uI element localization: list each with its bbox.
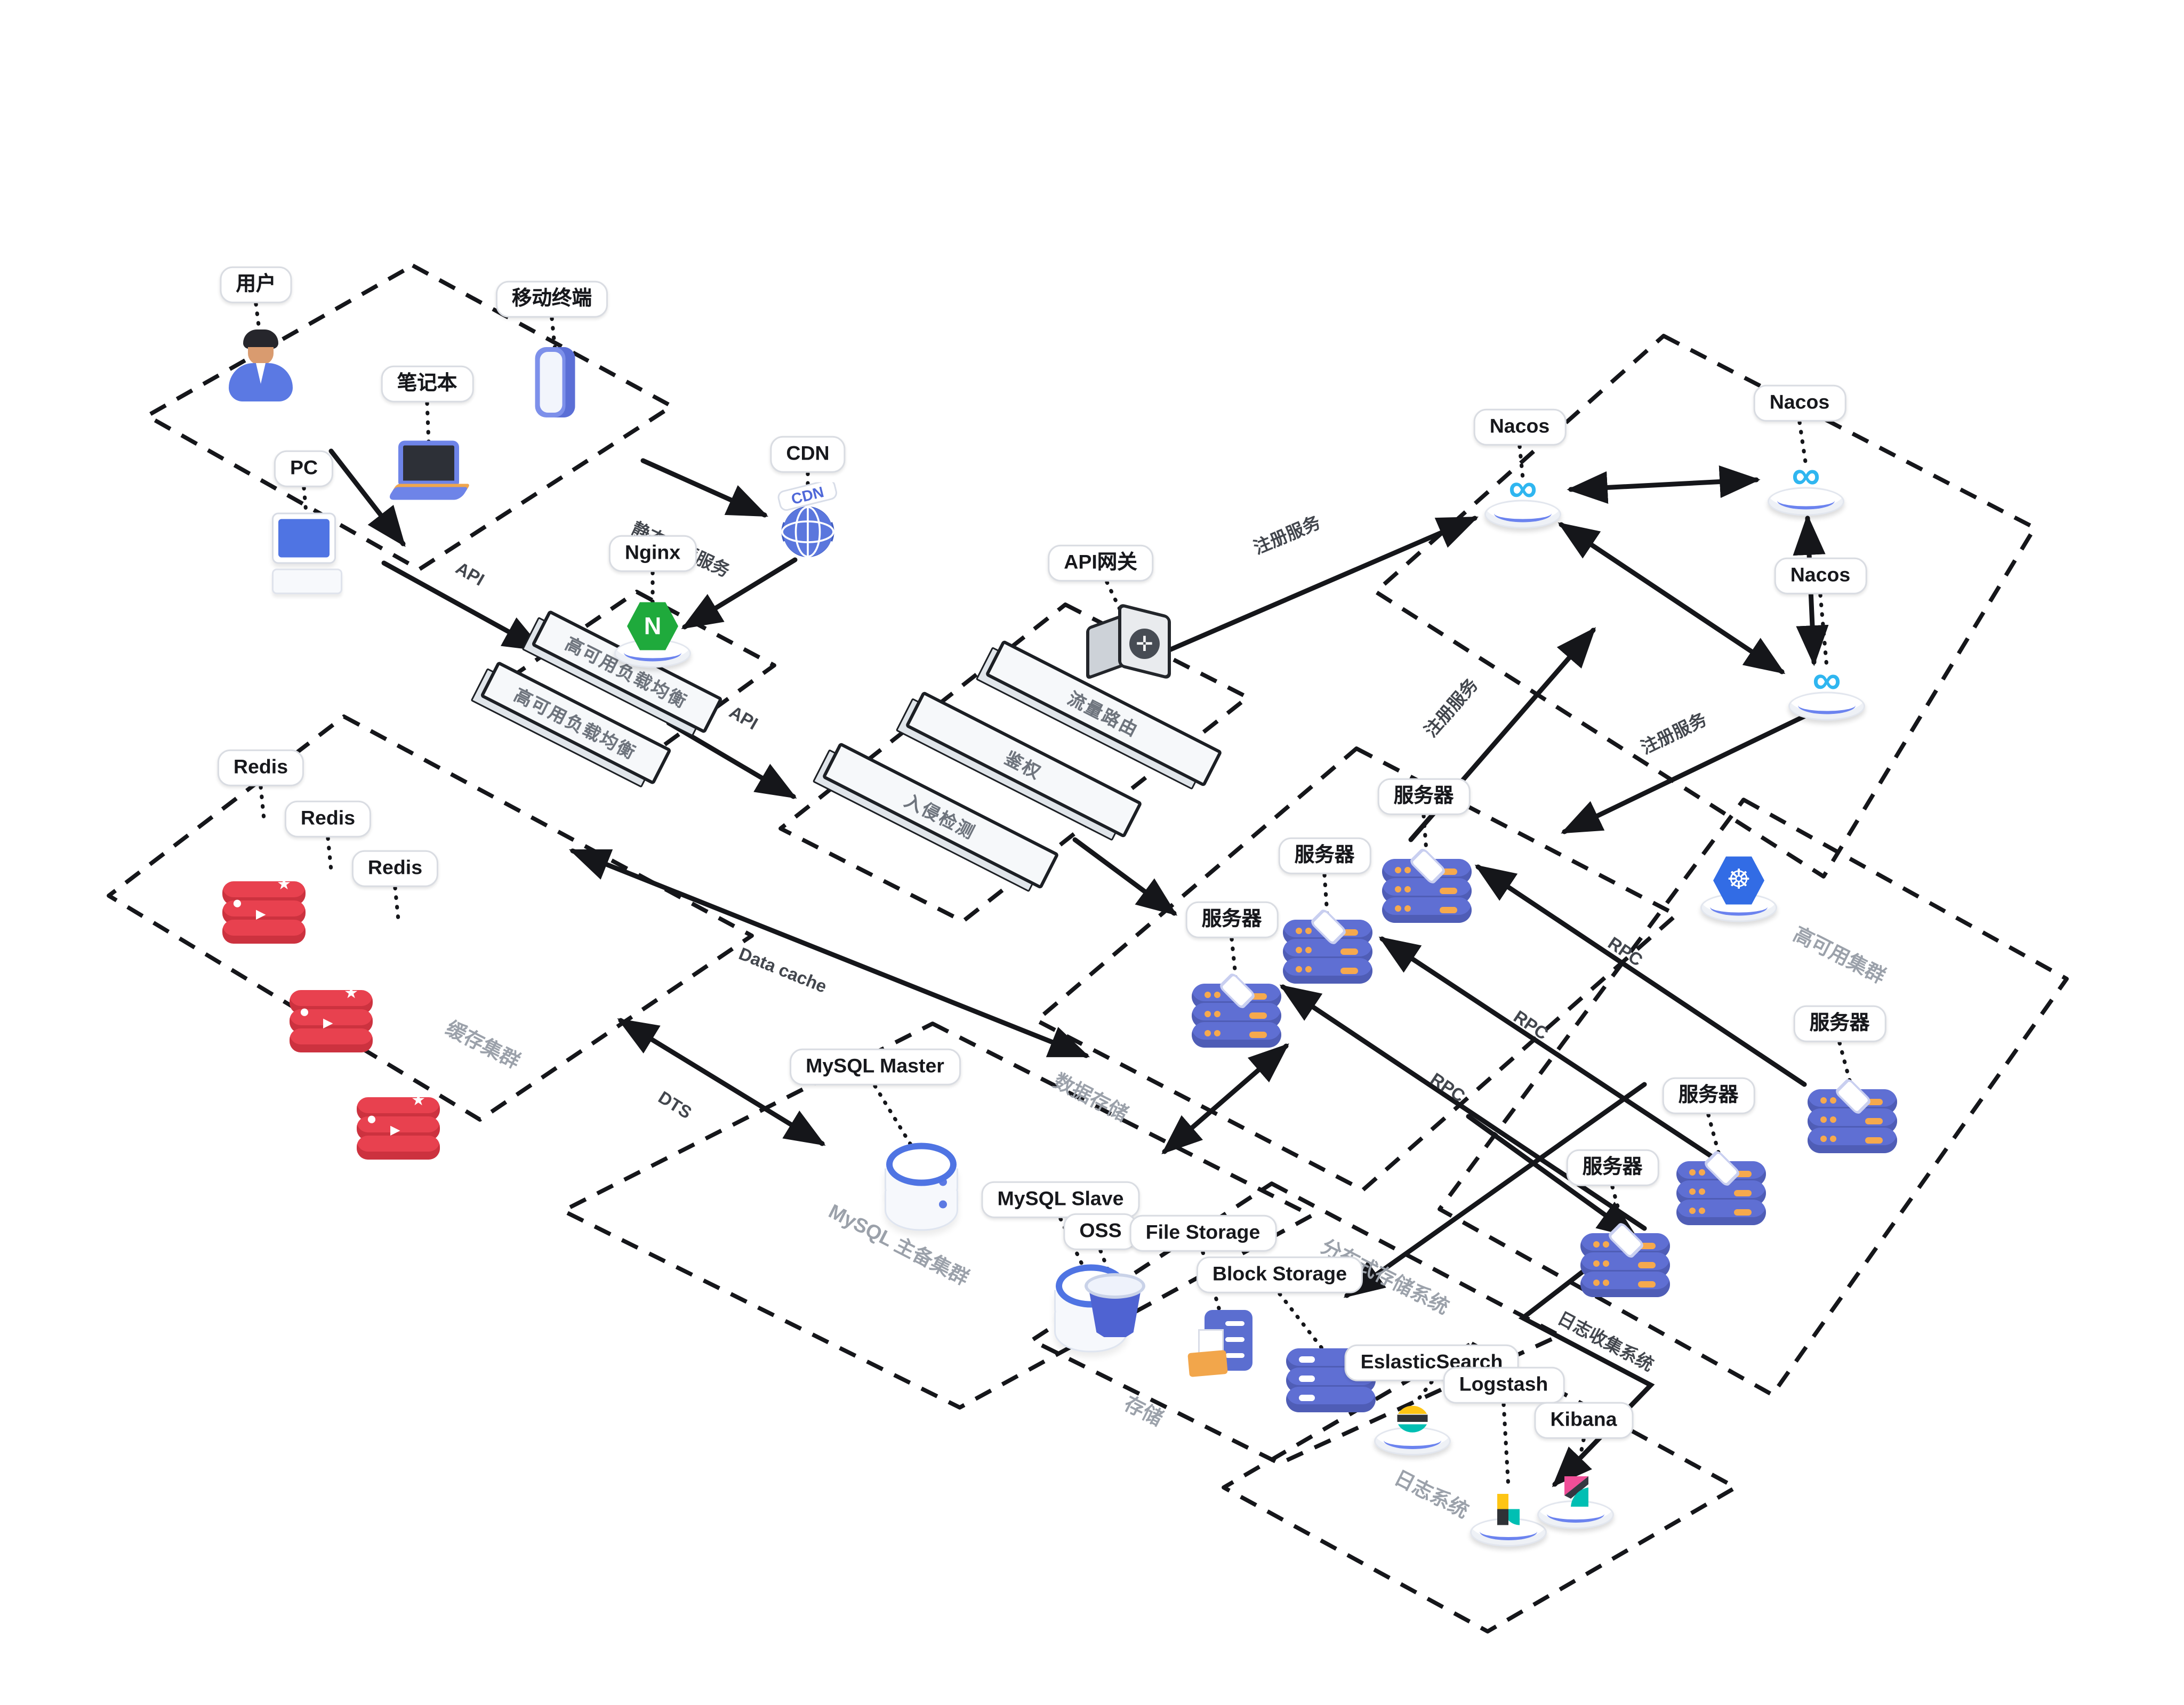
redis-stack-1: ★●▶ (221, 886, 307, 944)
edge-label-register-3: 注册服务 (1638, 709, 1710, 758)
api-gateway-label: API网关 (1048, 545, 1153, 582)
arrow-nacos-a-c (1561, 525, 1782, 672)
cdn-icon-text: CDN (790, 484, 826, 508)
nacos-icon-1: ∞ (1484, 473, 1561, 529)
arrow-rpc-2 (1382, 939, 1712, 1156)
nacos-label-1: Nacos (1474, 409, 1566, 446)
edge-label-api-1: API (453, 558, 488, 590)
server-stack-2 (1281, 910, 1374, 984)
region-label-ha-cluster: 高可用集群 (1790, 922, 1889, 988)
cdn-globe-icon: CDN (771, 482, 845, 570)
server-stack-4 (1806, 1080, 1899, 1153)
arrow-gateway-to-services (1075, 840, 1174, 913)
logstash-icon (1470, 1492, 1547, 1547)
oss-bucket-icon (1085, 1273, 1145, 1337)
file-storage-icon (1189, 1310, 1252, 1371)
server-label-1: 服务器 (1378, 778, 1470, 815)
oss-label: OSS (1063, 1213, 1137, 1250)
logstash-label: Logstash (1443, 1367, 1564, 1404)
server-label-2: 服务器 (1279, 838, 1371, 874)
redis-label-3: Redis (352, 850, 438, 887)
arrow-data-cache (573, 851, 1086, 1056)
mysql-master-label: MySQL Master (790, 1049, 960, 1085)
redis-stack-2: ★●▶ (288, 995, 374, 1052)
mobile-phone-icon (535, 347, 575, 417)
mysql-master-icon (881, 1143, 961, 1231)
edge-label-dts: DTS (655, 1087, 695, 1122)
redis-stack-3: ★●▶ (355, 1102, 441, 1160)
region-label-data-store: 数据存储 (1050, 1069, 1132, 1126)
server-label-4: 服务器 (1794, 1006, 1886, 1042)
cdn-label: CDN (770, 436, 845, 473)
server-label-6: 服务器 (1567, 1149, 1659, 1186)
redis-label-2: Redis (285, 801, 371, 838)
region-label-storage: 存储 (1121, 1392, 1167, 1430)
kibana-icon (1537, 1475, 1614, 1529)
kubernetes-icon: ☸ (1700, 857, 1777, 922)
laptop-label: 笔记本 (381, 366, 473, 403)
arrow-static-assets (643, 461, 765, 515)
nacos-label-2: Nacos (1754, 385, 1846, 422)
diagram-lines-layer: API API 静态资源服务 注册服务 注册服务 注册服务 RPC RPC RP… (0, 0, 2184, 1705)
arrow-api-to-gateway (669, 723, 793, 797)
nacos-icon-3: ∞ (1788, 665, 1865, 721)
arrow-nacos-a-b (1571, 480, 1756, 489)
arrow-rpc-3 (1283, 987, 1644, 1228)
server-stack-3 (1190, 974, 1283, 1048)
nacos-icon-2: ∞ (1768, 460, 1844, 516)
kibana-label: Kibana (1534, 1402, 1633, 1439)
edge-label-data-cache: Data cache (736, 944, 830, 997)
server-stack-6 (1579, 1224, 1672, 1297)
arrow-dts (621, 1020, 822, 1144)
edge-label-register-2: 注册服务 (1420, 675, 1482, 741)
api-gateway-icon: ✛ (1086, 608, 1173, 678)
mysql-slave-label: MySQL Slave (982, 1181, 1140, 1218)
server-stack-5 (1675, 1152, 1768, 1225)
file-storage-label: File Storage (1130, 1215, 1276, 1252)
redis-label-1: Redis (218, 750, 304, 786)
block-storage-label: Block Storage (1197, 1257, 1363, 1293)
region-label-log-system: 日志系统 (1391, 1466, 1473, 1523)
nginx-icon: N (614, 602, 691, 668)
user-label: 用户 (220, 267, 292, 303)
arrow-register-gateway-nacos (1149, 518, 1475, 659)
laptop-icon (392, 441, 465, 500)
arrow-data-store (1165, 1046, 1286, 1152)
region-label-cache: 缓存集群 (443, 1017, 524, 1073)
pc-label: PC (274, 451, 334, 487)
mobile-label: 移动终端 (496, 281, 608, 318)
edge-label-register-1: 注册服务 (1251, 512, 1323, 558)
elasticsearch-icon (1374, 1401, 1451, 1455)
server-label-5: 服务器 (1663, 1077, 1755, 1114)
nginx-label: Nginx (609, 535, 696, 572)
edge-label-api-2: API (726, 702, 761, 734)
server-label-3: 服务器 (1186, 902, 1278, 938)
nacos-label-3: Nacos (1774, 558, 1867, 594)
user-person-icon (226, 329, 296, 413)
pc-icon (272, 513, 342, 594)
architecture-diagram: API API 静态资源服务 注册服务 注册服务 注册服务 RPC RPC RP… (0, 0, 2184, 1705)
server-stack-1 (1380, 849, 1473, 923)
